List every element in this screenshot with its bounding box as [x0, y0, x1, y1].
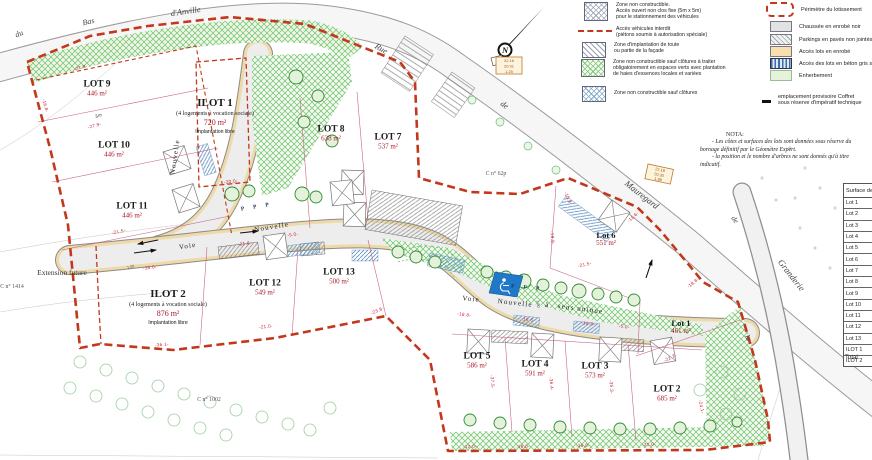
legend-zone-item: Zone non constructible sauf clôtures — [582, 86, 697, 102]
zone-implantation-facade-swatch — [582, 42, 606, 58]
legend-zone-item: Accès véhicules interdit (piétons soumis… — [578, 26, 707, 38]
enherbement-swatch — [770, 70, 792, 81]
nota-line: - Les côtes et surfaces des lots sont do… — [700, 139, 872, 146]
table-row: Lot 8 — [844, 277, 872, 288]
lot-10-label: LOT 10 446 m² — [98, 141, 130, 158]
legend-surface-item: Accès des lots en béton gris strié — [770, 58, 872, 69]
street-label-de2: de — [729, 214, 741, 226]
dimension-label: -16.0- — [516, 444, 530, 449]
lot-area: 551 m² — [596, 240, 616, 247]
legend-surface-item: Chaussée en enrobé noir — [770, 21, 861, 32]
lot-area: 638 m² — [317, 135, 344, 142]
nota-line: - la position et le nombre d'arbres ne s… — [700, 154, 872, 161]
legend-label: Enherbement — [799, 73, 832, 79]
parking-p-markings: P P P — [240, 202, 273, 213]
extension-future-label: Extension future — [32, 269, 92, 277]
lot-11-label: LOT 11 446 m² — [116, 202, 147, 219]
dimension-label: -21.5- — [577, 261, 592, 269]
table-row: Lot 12 — [844, 322, 872, 333]
width-annotation: 1.00 — [536, 300, 541, 308]
lot-name: ILOT 2 — [125, 289, 211, 301]
ilot-1-label: ILOT 1 (4 logements à vocation sociale) … — [172, 98, 258, 136]
table-header: Surface de — [844, 184, 872, 198]
legend-zones: Zone non constructible. Accès ouvert non… — [568, 2, 746, 102]
nota-block: NOTA: - Les côtes et surfaces des lots s… — [700, 132, 872, 169]
dimension-label: 3m — [95, 112, 103, 119]
table-row: Lot 1 — [844, 198, 872, 209]
legend-surface-item: Périmètre du lotissement — [766, 2, 862, 17]
lot-7-label: LOT 7 537 m² — [374, 133, 401, 150]
lot-area: 549 m² — [249, 289, 281, 296]
lot-area: 446 m² — [83, 90, 110, 97]
lot-note: Implantation libre — [125, 321, 211, 326]
legend-surface-item: Parkings en pavés non jointés — [770, 34, 872, 45]
lot-area: 586 m² — [463, 362, 490, 369]
dimension-label: -24.1- — [698, 399, 706, 414]
legend-label: Accès lots en enrobé — [799, 49, 850, 55]
legend-line: (piétons soumis à autorisation spéciale) — [616, 32, 707, 38]
table-row: Lot 11 — [844, 311, 872, 322]
legend-surface-item: Enherbement — [770, 70, 832, 81]
dimension-label: -21.5- — [111, 228, 126, 236]
street-label-bas: Bas — [82, 16, 96, 27]
street-label-du: du — [14, 28, 25, 39]
table-row: Lot 4 — [844, 232, 872, 243]
lot-subtitle: (4 logements à vocation sociale) — [172, 111, 258, 117]
lot-8-label: LOT 8 638 m² — [317, 125, 344, 142]
table-row: Lot 2 — [844, 209, 872, 220]
lot-area: 446 m² — [116, 212, 147, 219]
acces-lots-enrobe-swatch — [770, 46, 792, 57]
lot-6-label: Lot 6 551 m² — [596, 231, 616, 247]
elevation-value: 1.25 — [505, 69, 514, 74]
site-plan: N 22.16 20.91 1.25 22.18 20.30 1.88 du B… — [0, 0, 872, 460]
dimension-label: -12.0- — [463, 444, 477, 449]
legend-label: Parkings en pavés non jointés — [799, 37, 872, 43]
table-row: Lot 3 — [844, 221, 872, 232]
legend-label: Périmètre du lotissement — [801, 7, 862, 13]
lot-area: 876 m² — [125, 310, 211, 318]
legend-note-line: sous réserve d'impératif technique — [778, 101, 862, 107]
table-row: Lot 6 — [844, 254, 872, 265]
dimension-label: -36.4- — [549, 377, 555, 391]
dimension-label: -21.0- — [259, 323, 273, 330]
acces-vehicules-interdit-swatch — [578, 30, 612, 32]
table-row: Lot 10 — [844, 300, 872, 311]
nota-line: indicatif. — [700, 162, 872, 169]
lot-9-label: LOT 9 446 m² — [83, 80, 110, 97]
parcel-c1002-label: C n° 1002 — [197, 397, 221, 403]
surfaces-table: Surface de Lot 1 Lot 2 Lot 3 Lot 4 Lot 5… — [843, 183, 872, 367]
legend-surface-item: Accès lots en enrobé — [770, 46, 850, 57]
lot-area: 573 m² — [581, 372, 608, 379]
zone-non-constructible-clotures-swatch — [582, 86, 606, 102]
elevation-value: 22.16 — [504, 58, 515, 63]
legend-label: Chaussée en enrobé noir — [799, 24, 861, 30]
acces-lots-beton-swatch — [770, 58, 792, 69]
table-row: Lot 9 — [844, 288, 872, 299]
elevation-box-1: 22.16 20.91 1.25 — [496, 57, 522, 74]
table-total-label: Total: — [845, 355, 859, 361]
elevation-value: 20.91 — [504, 64, 515, 69]
ilot-2-label: ILOT 2 (4 logements à vocation sociale) … — [125, 289, 211, 327]
legend-zone-item: Zone non constructible. Accès ouvert non… — [584, 2, 701, 21]
street-label-granderie: Granderie — [776, 257, 807, 293]
lot-area: 537 m² — [374, 143, 401, 150]
dimension-label: -37.5- — [490, 375, 496, 389]
dimension-label: -16.0- — [576, 443, 590, 448]
legend-surfaces: Périmètre du lotissement Chaussée en enr… — [748, 2, 872, 114]
lot-4-label: LOT 4 591 m² — [521, 360, 548, 377]
lot-area: 720 m² — [172, 119, 258, 127]
lot-12-label: LOT 12 549 m² — [249, 279, 281, 296]
road-label-voie-b: Voie — [462, 294, 480, 303]
table-row: Lot 13 — [844, 334, 872, 345]
width-annotation: 1.00 — [127, 264, 135, 270]
perimetre-lotissement-swatch — [766, 2, 794, 17]
legend-label: Accès des lots en béton gris strié — [799, 61, 872, 67]
legend-coffret-note: emplacement provisoire Coffret sous rése… — [762, 95, 862, 107]
elevation-box-2: 22.18 20.30 1.88 — [645, 164, 674, 184]
lot-1-label: Lot 1 461 m² — [671, 319, 691, 335]
table-row: Lot 5 — [844, 243, 872, 254]
legend-line: pour le stationnement des véhicules — [616, 14, 701, 20]
nota-line: bornage définitif par le Géomètre Expert… — [700, 147, 872, 154]
legend-line: ou partie de la façade — [614, 48, 679, 54]
zone-non-constructible-acces-swatch — [584, 2, 608, 21]
lot-5-label: LOT 5 586 m² — [463, 352, 490, 369]
zone-espaces-verts-swatch — [581, 59, 605, 77]
parcel-c1414-label: C n° 1414 — [0, 284, 24, 290]
lot-13-label: LOT 13 500 m² — [323, 268, 355, 285]
parkings-paves-swatch — [770, 34, 792, 45]
lot-area: 685 m² — [653, 395, 680, 402]
lot-area: 591 m² — [521, 370, 548, 377]
legend-zone-item: Zone d'implantation de toute ou partie d… — [582, 42, 679, 58]
lot-note: Implantation libre — [172, 130, 258, 135]
dimension-label: -18.8- — [550, 231, 556, 245]
dimension-label: -21.0- — [642, 442, 656, 447]
lot-name: ILOT 1 — [172, 98, 258, 110]
legend-zone-item: Zone non constructible sauf clôtures à t… — [581, 59, 725, 77]
north-label: N — [501, 45, 509, 55]
dimension-label: -18.8- — [686, 276, 700, 289]
lot-area: 461 m² — [671, 328, 691, 335]
dimension-label: -36.1- — [155, 342, 169, 348]
coffret-marker-icon — [762, 100, 771, 103]
legend-line: de haies d'essences locales et variées — [613, 71, 725, 77]
chaussee-enrobe-swatch — [770, 21, 792, 32]
lot-3-label: LOT 3 573 m² — [581, 362, 608, 379]
lot-2-label: LOT 2 685 m² — [653, 385, 680, 402]
lot-subtitle: (4 logements à vocation sociale) — [125, 302, 211, 308]
dimension-label: -36.0- — [143, 264, 157, 271]
parcel-c62p-label: C n° 62p — [486, 171, 507, 177]
dimension-label: -23.8- — [370, 306, 385, 316]
legend-line: Zone non constructible sauf clôtures — [614, 90, 697, 96]
lot-area: 500 m² — [323, 278, 355, 285]
table-row: Lot 7 — [844, 266, 872, 277]
dimension-label: -27.9- — [87, 121, 102, 130]
lot-area: 446 m² — [98, 151, 130, 158]
dimension-label: -16.8- — [41, 98, 49, 113]
dimension-label: -18.8- — [457, 311, 471, 318]
dimension-label: -35.3- — [609, 380, 615, 394]
